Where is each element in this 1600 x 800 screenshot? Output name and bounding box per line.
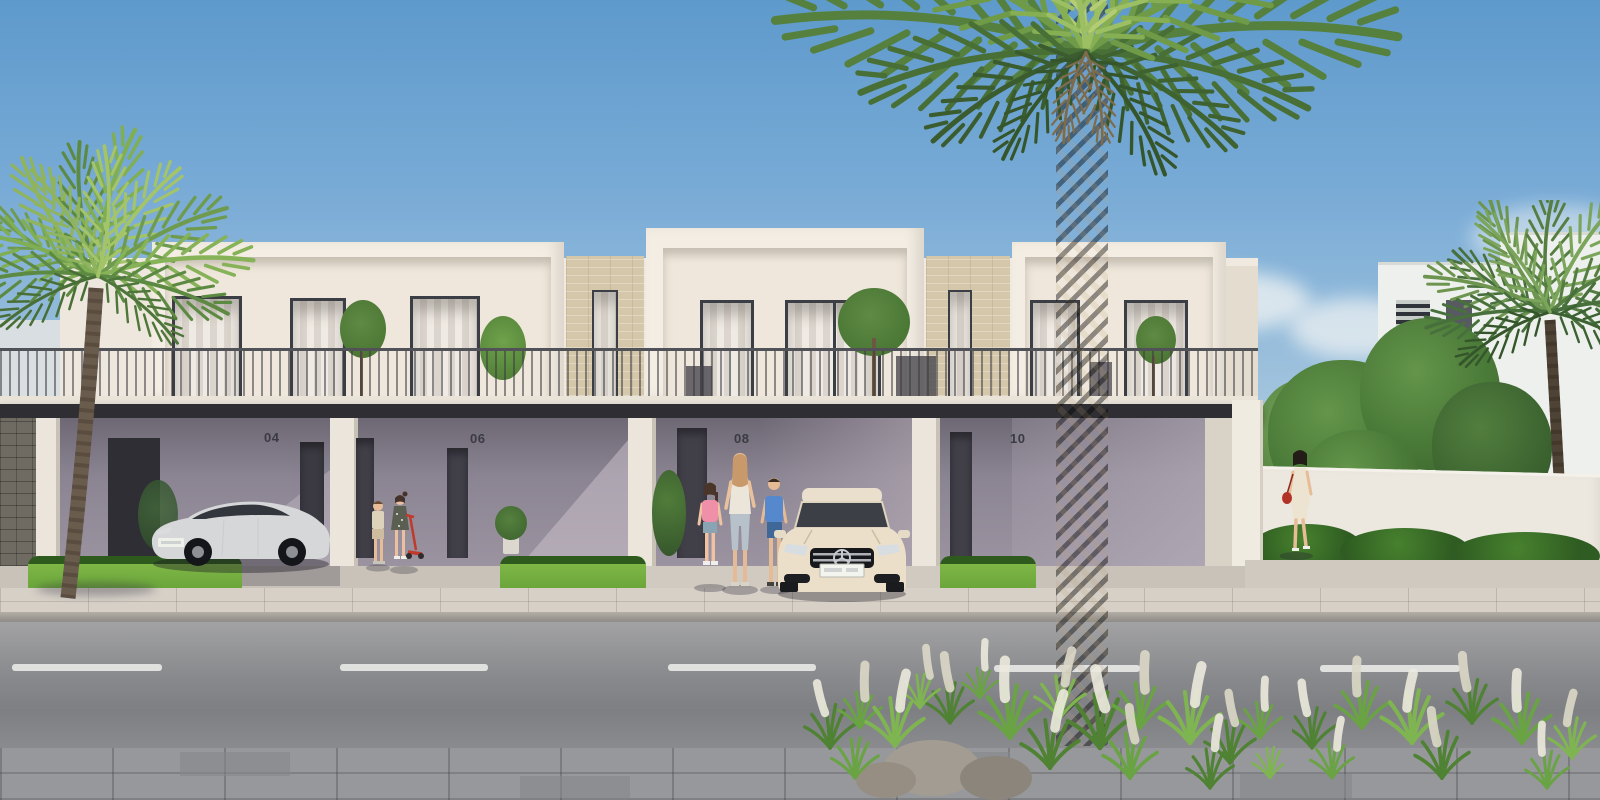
palm-canopy: [0, 122, 256, 354]
corner-pillar-return: [1205, 418, 1232, 566]
house-number-08: 08: [734, 431, 749, 446]
porch-plant: [495, 506, 527, 540]
walking-woman-figure: [1282, 450, 1311, 551]
curb: [0, 612, 1600, 622]
kid-girl-figure: [391, 492, 409, 560]
front-wheel: [780, 582, 798, 592]
entry-door-10: [950, 432, 972, 558]
walking-woman: [1280, 446, 1322, 564]
palm-tree-center: [770, 0, 1450, 380]
side-mirror: [774, 530, 786, 538]
pink-backpack: [702, 500, 718, 522]
fountain-grass-cluster: [800, 628, 1284, 800]
windshield: [795, 502, 889, 528]
house-number-06: 06: [470, 431, 485, 446]
cream-coupe: [772, 486, 914, 602]
kick-scooter: [406, 515, 424, 559]
palm-tree-left: [0, 50, 310, 610]
red-handbag: [1282, 492, 1292, 504]
fountain-grass-cluster-right: [1292, 648, 1600, 800]
front-wheel: [886, 582, 904, 592]
schoolgirl-figure: [699, 483, 721, 566]
kids-with-scooter: [364, 488, 426, 580]
rock: [960, 756, 1032, 800]
kid-boy-figure: [372, 501, 385, 564]
palm-canopy: [770, 0, 1402, 186]
paver-tile: [520, 776, 630, 798]
scene-render: 04 06 08 10: [0, 0, 1600, 800]
lane-marking: [340, 664, 488, 671]
right-sidewalk: [1245, 560, 1600, 590]
house-number-10: 10: [1010, 431, 1025, 446]
grass-plumes: [1301, 655, 1573, 753]
carport-pillar: [628, 418, 656, 566]
lane-marking: [668, 664, 816, 671]
sunlight-wedge: [1012, 418, 1205, 566]
porch-plant: [652, 470, 686, 556]
paver-tile: [180, 752, 290, 776]
carport-pillar: [912, 418, 940, 566]
lane-marking: [12, 664, 162, 671]
entry-door-06: [447, 448, 468, 558]
mother-figure: [726, 453, 754, 586]
side-mirror: [898, 530, 910, 538]
